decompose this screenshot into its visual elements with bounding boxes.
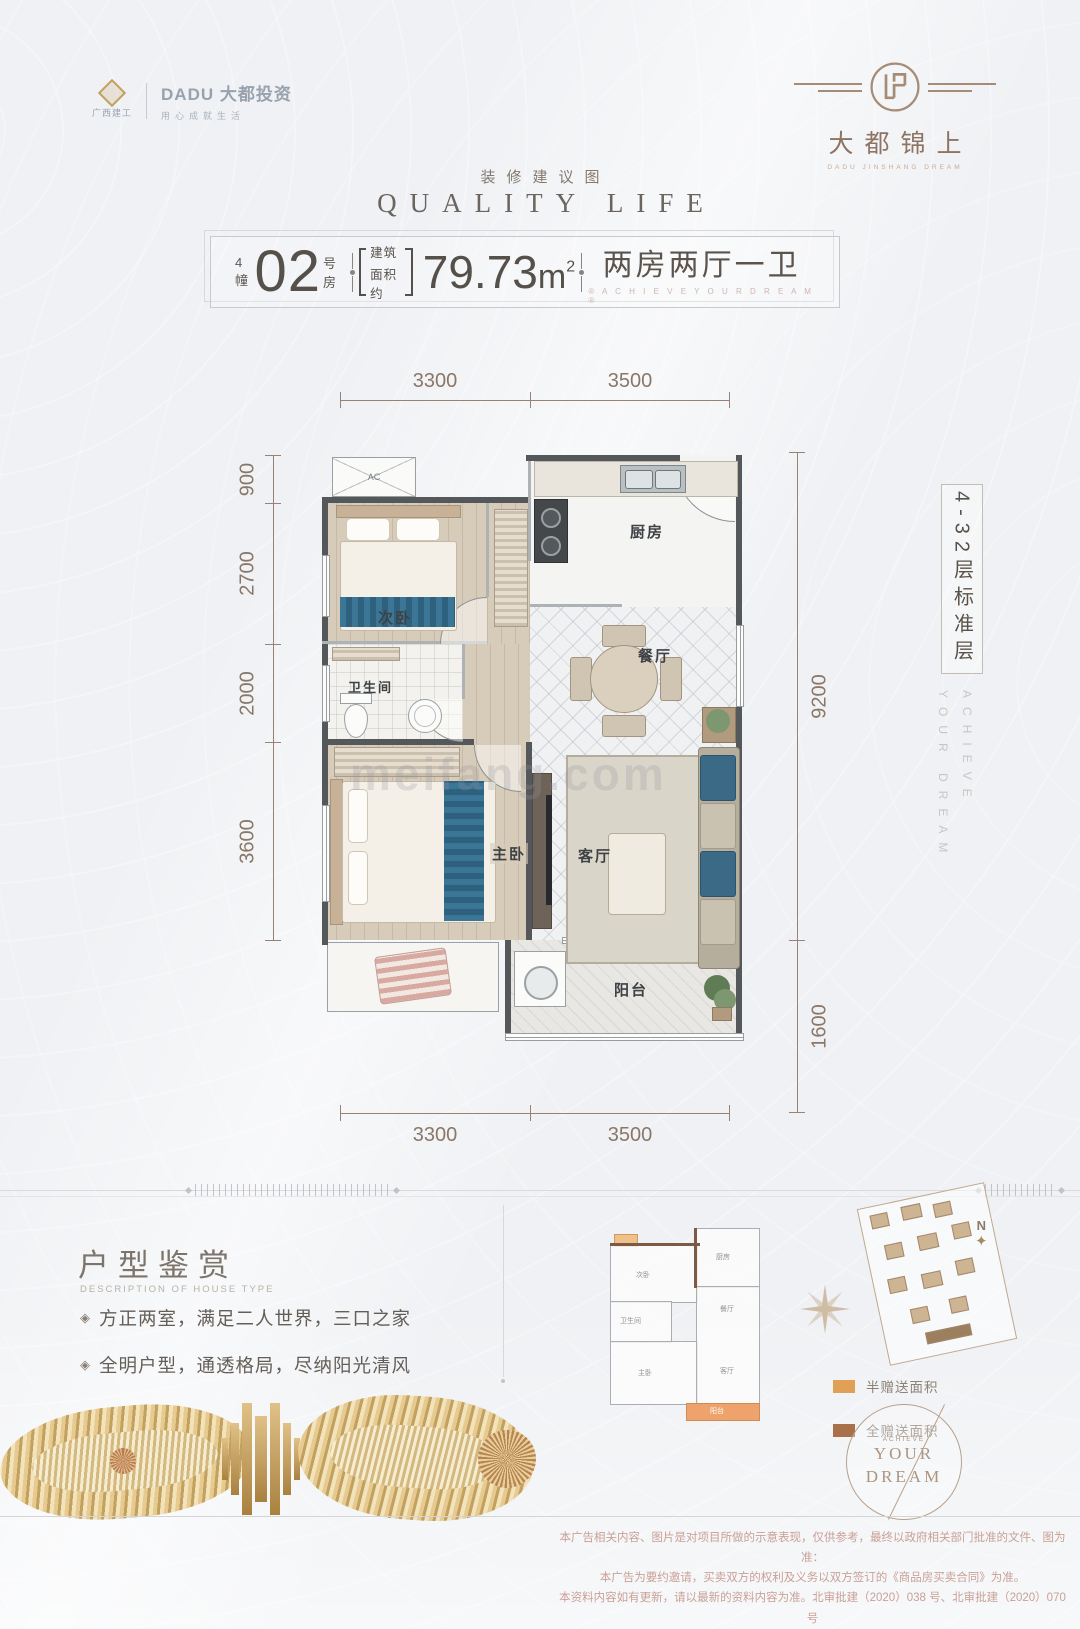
washer-drum (524, 966, 558, 1000)
appreciation-bullet-1: ◈ 方正两室，满足二人世界，三口之家 (80, 1305, 411, 1331)
sofa-cushion (700, 851, 736, 897)
north-indicator: N ✦ (975, 1218, 988, 1249)
unit-number: 02 (254, 243, 321, 301)
room-label-living: 客厅 (578, 845, 612, 866)
sofa-cushion (700, 899, 736, 945)
room-label-balcony: 阳台 (614, 979, 648, 1000)
window (322, 805, 330, 902)
area-label-top: 建筑 (370, 242, 401, 261)
spec-bar: 4幢 02 号房 建筑 面积约 79.73m2 两房两厅一卫 ® A C H I… (210, 236, 840, 308)
dining-set (562, 617, 688, 743)
vertical-mini-divider (503, 1205, 504, 1377)
decoration-note: 装修建议图 (0, 166, 1080, 187)
divider-tick-band (985, 1184, 1055, 1196)
site-building (951, 1221, 972, 1239)
appreciation-title: 户型鉴赏 (78, 1240, 238, 1285)
divider-diamond (1058, 1187, 1065, 1194)
thumb-label-living: 客厅 (720, 1366, 734, 1376)
divider-tick-band (195, 1184, 390, 1196)
legend-half-gift: 半赠送面积 (833, 1376, 939, 1396)
disclaimer: 本广告相关内容、图片是对项目所做的示意表现，仅供参考，最终以政府相关部门批准的文… (555, 1528, 1070, 1629)
master-pillow (348, 851, 368, 905)
plant-leaf (706, 709, 730, 733)
bullet-text-1: 方正两室，满足二人世界，三口之家 (99, 1305, 411, 1331)
area-superscript: 2 (566, 259, 575, 276)
area-label: 建筑 面积约 (366, 242, 405, 302)
partition (486, 503, 489, 597)
dim-line-right (797, 452, 798, 1113)
thumb-label-balcony: 阳台 (710, 1406, 724, 1416)
standard-floors-box: 4-32层标准层 (941, 484, 983, 674)
section-divider-line (0, 1190, 1080, 1191)
site-building (948, 1295, 969, 1313)
thumb-label-master: 主卧 (638, 1368, 652, 1378)
wall (505, 940, 511, 1040)
site-building (955, 1257, 976, 1275)
site-building (910, 1306, 931, 1324)
dim-right-a: 9200 (809, 662, 832, 732)
dining-chair (602, 715, 646, 737)
bed2-pillow (346, 518, 390, 541)
disclaimer-line-2: 本广告为要约邀请，买卖双方的权利及义务以双方签订的《商品房买卖合同》为准。 (555, 1568, 1070, 1588)
group-brand: DADU 大都投资 用心成就生活 (161, 80, 292, 122)
dim-left-c: 2000 (237, 659, 260, 729)
thumb-thick-wall (610, 1243, 700, 1246)
floor-plan: AC (322, 455, 746, 1040)
washing-machine (514, 951, 566, 1007)
tick (265, 940, 281, 941)
room-label-bathroom: 卫生间 (348, 677, 393, 696)
bath-shelf (332, 647, 400, 661)
thumbnail-floor-plan: 次卧 卫生间 主卧 厨房 餐厅 客厅 阳台 (598, 1226, 788, 1416)
bracket-right (405, 248, 412, 296)
stove-burner (541, 536, 561, 556)
quality-life-title: QUALITY LIFE (0, 188, 1080, 219)
sofa-cushion (700, 803, 736, 849)
project-emblem-row (794, 58, 996, 116)
site-building (887, 1276, 908, 1294)
divider-pin-2 (575, 253, 588, 292)
site-building (932, 1201, 953, 1218)
sofa-cushion (700, 755, 736, 801)
bottom-divider-line (0, 1516, 1080, 1517)
north-label: N (977, 1218, 986, 1233)
layout-group: 两房两厅一卫 ® A C H I E V E Y O U R D R E A M… (588, 240, 815, 305)
balcony-plant-pot (712, 1007, 732, 1021)
layout-text: 两房两厅一卫 (603, 240, 801, 284)
tick (789, 940, 805, 941)
divider-pin (345, 253, 358, 292)
appreciation-subtitle: DESCRIPTION OF HOUSE TYPE (80, 1284, 274, 1295)
area-number: 79.73 (423, 246, 538, 298)
divider-diamond (393, 1187, 400, 1194)
site-building (884, 1242, 905, 1260)
dim-bottom-b: 3500 (530, 1124, 730, 1147)
dim-top-b: 3500 (530, 370, 730, 393)
dim-left-d: 3600 (237, 807, 260, 877)
area-group: 建筑 面积约 79.73m2 (359, 242, 575, 302)
dim-line-bottom (340, 1113, 730, 1114)
builder-name: 广西建工 (92, 106, 132, 119)
layout-slogan: ® A C H I E V E Y O U R D R E A M ® (588, 287, 815, 305)
bay-towels (374, 947, 452, 1005)
dim-line-left (273, 455, 274, 941)
thumb-bedroom2 (610, 1245, 698, 1303)
poster-page: 广西建工 DADU 大都投资 用心成就生活 大都锦上 DADU JINSHANG… (0, 0, 1080, 1629)
gold-starburst (478, 1430, 536, 1488)
kitchen-sink (620, 465, 686, 493)
stove-burner (541, 508, 561, 528)
gold-center-bars (222, 1398, 300, 1520)
partition (528, 461, 531, 561)
balcony-glass (505, 1033, 744, 1041)
dim-left-b: 2700 (237, 539, 260, 609)
tick (340, 1105, 341, 1121)
sink-basin (655, 470, 681, 489)
disclaimer-line-3: 本资料内容如有更新，请以最新的资料内容为准。北审批建（2020）038 号、北审… (555, 1588, 1070, 1628)
unit-number-group: 4幢 02 号房 (235, 243, 345, 301)
builder-brand-block: 广西建工 DADU 大都投资 用心成就生活 (92, 80, 292, 122)
site-building (921, 1270, 944, 1289)
project-logo-block: 大都锦上 DADU JINSHANG DREAM (800, 58, 990, 171)
spec-bar-content: 4幢 02 号房 建筑 面积约 79.73m2 两房两厅一卫 ® A C H I… (211, 237, 839, 307)
bed2-pillow (396, 518, 440, 541)
site-building (900, 1203, 922, 1221)
standard-floors-text: 4-32层标准层 (948, 491, 977, 667)
window (736, 625, 744, 707)
compass-rose-icon (800, 1284, 850, 1334)
bracket-left (359, 248, 366, 296)
stamp-line1: ACHIEVE (883, 1436, 926, 1443)
area-value: 79.73m2 (423, 249, 575, 295)
tick (265, 503, 281, 504)
coffee-table (608, 833, 666, 915)
dining-chair (602, 625, 646, 647)
divider-diamond (185, 1187, 192, 1194)
emblem-lines-right (928, 83, 996, 92)
dim-top-a: 3300 (340, 370, 530, 393)
dream-stamp: ACHIEVE YOUR DREAM (846, 1404, 962, 1520)
dim-line-top (340, 400, 730, 401)
tick (530, 392, 531, 408)
area-label-bottom: 面积约 (370, 264, 401, 302)
window (322, 555, 330, 617)
vertical-slogan-left: YOUR DREAM (936, 690, 950, 861)
legend-swatch-half (833, 1380, 855, 1393)
stamp-line2: YOUR (874, 1443, 934, 1465)
north-star-icon: ✦ (975, 1234, 988, 1249)
bath-basin (408, 699, 442, 733)
project-emblem-icon (868, 60, 922, 114)
thumb-master (610, 1341, 698, 1405)
tick (789, 452, 805, 453)
tick (789, 1112, 805, 1113)
tv (546, 795, 552, 905)
bedroom2-wardrobe (494, 509, 528, 627)
area-unit: m (538, 258, 566, 296)
thumb-label-dining: 餐厅 (720, 1304, 734, 1314)
unit-suffix: 号房 (323, 253, 345, 291)
master-blue-runner (444, 781, 484, 921)
bed2-headboard (336, 505, 461, 518)
dim-right-b: 1600 (809, 992, 832, 1062)
disclaimer-line-1: 本广告相关内容、图片是对项目所做的示意表现，仅供参考，最终以政府相关部门批准的文… (555, 1528, 1070, 1568)
thumb-label-bathroom: 卫生间 (620, 1316, 641, 1326)
tick (530, 1105, 531, 1121)
kitchen-stove (534, 499, 568, 563)
gold-ornament (0, 1368, 545, 1533)
dining-chair (570, 657, 592, 701)
diamond-bullet-icon: ◈ (80, 1310, 90, 1326)
room-label-master: 主卧 (490, 843, 528, 864)
room-label-bedroom2: 次卧 (378, 607, 412, 628)
site-building (869, 1212, 890, 1229)
tick (340, 392, 341, 408)
group-name: DADU 大都投资 (161, 80, 292, 105)
site-entrance-strip (925, 1323, 972, 1344)
wall (322, 497, 530, 503)
emblem-lines-left (794, 83, 862, 92)
builder-logo: 广西建工 (92, 83, 132, 119)
corridor-floor (462, 644, 530, 742)
thumb-label-kitchen: 厨房 (716, 1252, 730, 1262)
brand-divider (146, 83, 147, 119)
site-building (917, 1232, 940, 1251)
block-prefix: 4幢 (235, 255, 252, 289)
vertical-slogan: YOUR DREAM ACHIEVE (936, 690, 974, 861)
legend-label-half: 半赠送面积 (866, 1376, 939, 1396)
tick (729, 1105, 730, 1121)
tick (265, 742, 281, 743)
window (322, 665, 330, 722)
site-plan (857, 1182, 1017, 1366)
thumb-thick-wall (694, 1228, 697, 1288)
group-tagline: 用心成就生活 (161, 109, 292, 122)
ac-label: AC (368, 472, 381, 482)
builder-logo-icon (98, 79, 126, 107)
dim-bottom-a: 3300 (340, 1124, 530, 1147)
partition (462, 644, 465, 699)
tick (729, 392, 730, 408)
dim-left-a: 900 (237, 445, 260, 515)
room-label-kitchen: 厨房 (630, 521, 664, 542)
project-name: 大都锦上 (817, 124, 972, 160)
partition (530, 604, 622, 607)
tick (265, 455, 281, 456)
room-label-dining: 餐厅 (638, 645, 672, 666)
photo-watermark: meifang.com (350, 747, 667, 801)
sink-basin (625, 470, 653, 489)
vertical-slogan-right: ACHIEVE (960, 690, 974, 861)
tick (265, 644, 281, 645)
thumb-label-bedroom2: 次卧 (636, 1270, 650, 1280)
gold-flower-left (110, 1448, 136, 1474)
ac-platform: AC (332, 457, 416, 497)
